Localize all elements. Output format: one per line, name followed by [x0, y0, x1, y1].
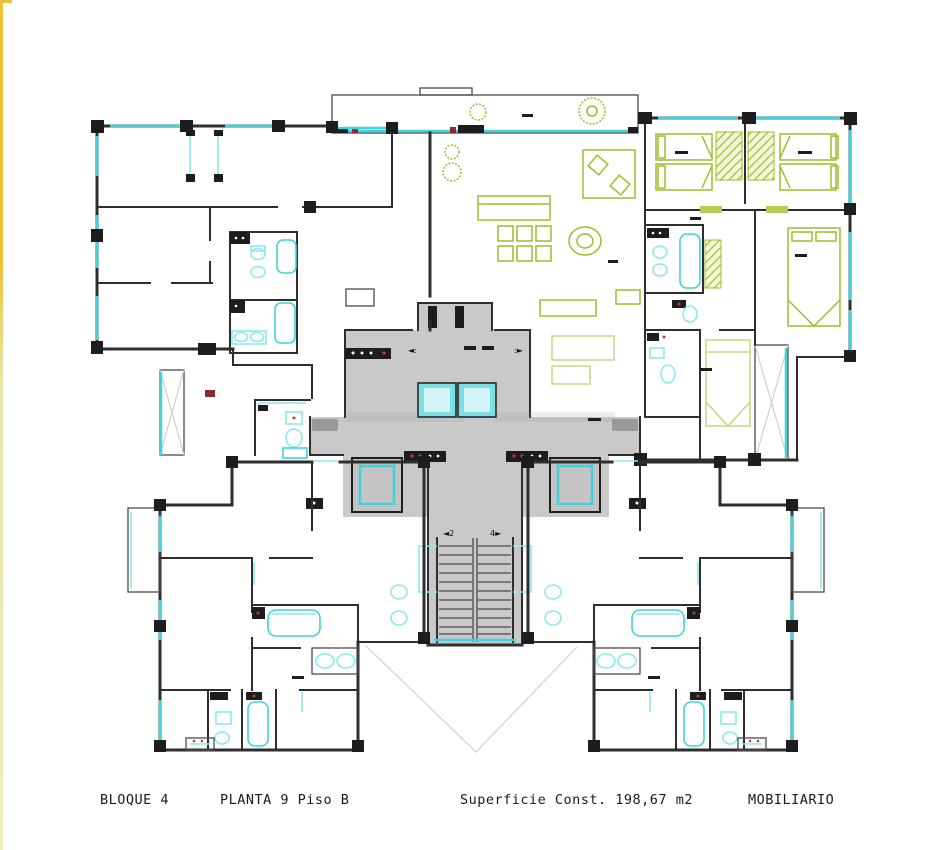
wardrobe-icon [705, 240, 721, 288]
wardrobe-icon [748, 132, 774, 180]
bathtub-icon [248, 702, 268, 746]
door-threshold [700, 206, 722, 213]
sink-icon [235, 333, 248, 342]
top-balcony [332, 88, 638, 133]
bathroom [647, 333, 675, 383]
built-area-label: Superficie Const. 198,67 m2 [460, 792, 693, 808]
toilet-icon [391, 585, 407, 599]
floor-label: PLANTA 9 Piso B [220, 792, 349, 808]
elevator-arrow-right: :► [514, 346, 524, 355]
cabinet-icon [616, 290, 640, 304]
toilet-icon [286, 429, 302, 447]
elevator-lower-right [550, 458, 600, 512]
plant-icon [470, 104, 486, 120]
terrace [128, 508, 160, 592]
stair-arrow-up: 4► [490, 529, 502, 538]
door-threshold [766, 206, 788, 213]
furnishing-label: MOBILIARIO [748, 792, 834, 808]
cabinet-icon [540, 300, 596, 316]
light-shaft-right [755, 345, 788, 460]
toilet-icon [653, 246, 667, 258]
sink-icon [316, 654, 334, 668]
sink-icon [337, 654, 355, 668]
utility-box [186, 738, 214, 750]
bedroom-furniture [705, 228, 840, 326]
toilet-icon [215, 732, 229, 744]
block-label: BLOQUE 4 [100, 792, 169, 808]
plant-icon [443, 163, 461, 181]
rug-icon [583, 150, 635, 198]
sink-icon [251, 333, 264, 342]
armchair-icon [588, 155, 608, 175]
bathroom [672, 300, 697, 322]
vanity-icon [312, 648, 358, 674]
elevator-top-left [418, 383, 456, 417]
bedroom-furniture [656, 132, 742, 190]
bedroom-furniture [748, 132, 838, 190]
bathroom [210, 692, 268, 746]
toilet-icon [661, 365, 675, 383]
kitchen-counter [345, 348, 391, 359]
stair-arrow-down: ◄2 [443, 529, 454, 538]
toilet-icon [251, 249, 265, 260]
bathtub-icon [275, 303, 295, 343]
bathtub-icon [680, 234, 700, 288]
sofa-icon [478, 196, 550, 220]
elevator-lower-left [352, 458, 402, 512]
room-label-marks [292, 676, 304, 679]
shower-icon [283, 448, 307, 458]
door-leaf-icon [205, 390, 215, 397]
plant-icon [579, 98, 605, 124]
light-shaft-left [160, 370, 184, 455]
wardrobe-icon [716, 132, 742, 180]
sink-icon [650, 348, 664, 358]
sink-icon [216, 712, 231, 724]
void-projection-lines [365, 645, 577, 752]
toilet-icon [683, 306, 697, 322]
apartment-entry-door-smudge [612, 419, 638, 431]
bathroom [647, 228, 700, 288]
plant-icon [445, 145, 459, 159]
floor-plan-sheet: ◄: :► [0, 0, 945, 850]
bathtub-icon [277, 240, 296, 273]
door-leaf-icon [455, 306, 464, 328]
bidet-icon [251, 267, 265, 278]
guest-toilet [255, 400, 310, 458]
hall-table [346, 289, 374, 306]
bathroom [252, 585, 407, 674]
elevator-top-right [458, 383, 496, 417]
apartment-entry-door-smudge [312, 419, 338, 431]
bathroom [230, 232, 297, 353]
bidet-icon [653, 264, 667, 276]
bed-icon [788, 228, 840, 326]
bidet-icon [391, 611, 407, 625]
floor-plan-drawing: ◄: :► [0, 0, 945, 850]
bed-icon [706, 340, 750, 426]
round-table-icon [569, 227, 601, 255]
armchair-icon [610, 175, 630, 195]
living-room-furniture [443, 145, 640, 316]
elevator-arrow-left: ◄: [408, 346, 417, 355]
